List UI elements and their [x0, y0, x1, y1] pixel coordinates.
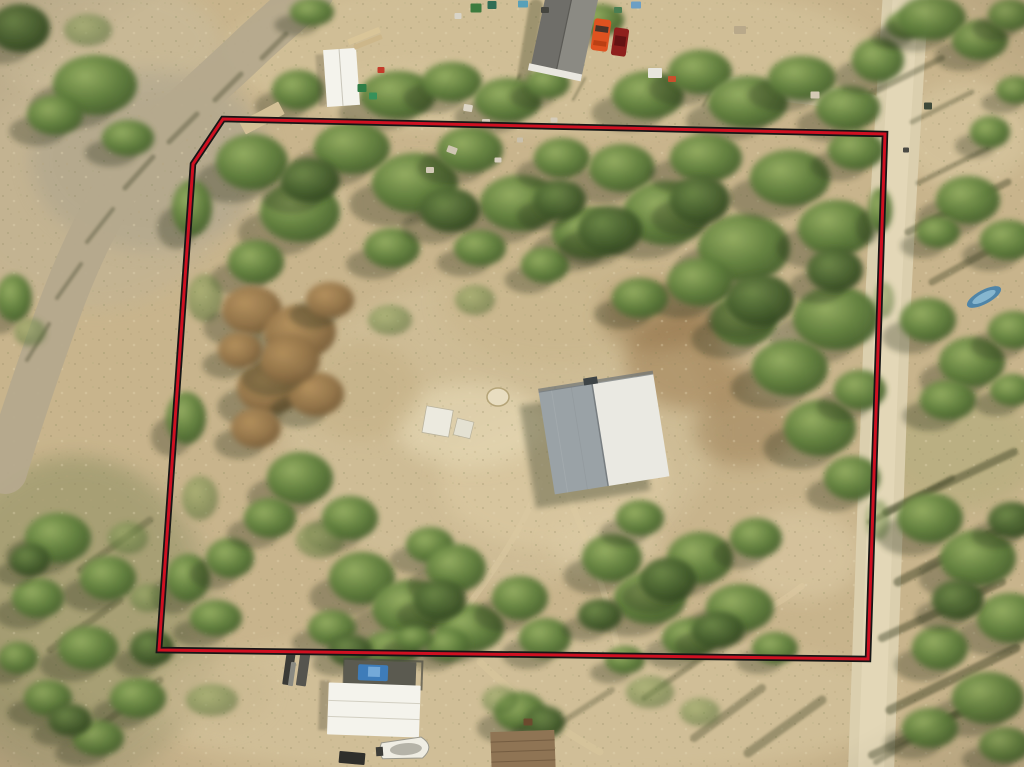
vignette — [0, 0, 1024, 767]
aerial-photo-stage — [0, 0, 1024, 767]
aerial-photo — [0, 0, 1024, 767]
